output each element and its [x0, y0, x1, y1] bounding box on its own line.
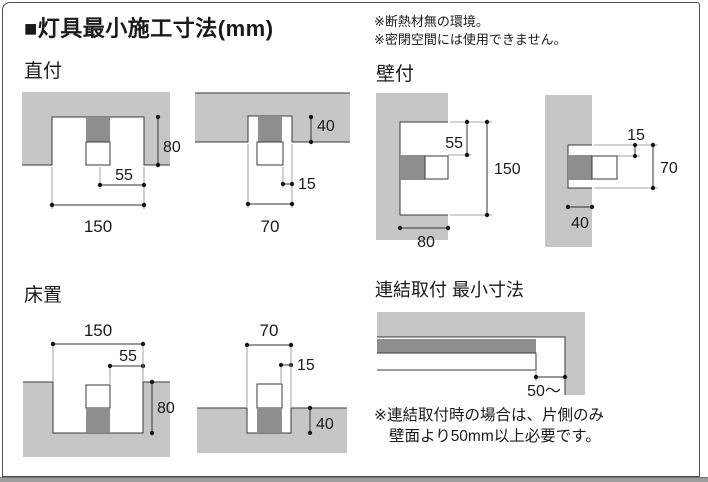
dimension-dot	[446, 226, 450, 230]
dim-label-offset: 55	[115, 167, 133, 184]
fixture-lamp	[377, 353, 536, 370]
dimension-dot	[308, 431, 312, 435]
dim-label-depth: 40	[571, 215, 589, 232]
diagram-renketsu: 50〜	[374, 308, 624, 400]
spec-sheet-page: ■灯具最小施工寸法(mm) ※断熱材無の環境。 ※密閉空間には使用できません。 …	[0, 0, 708, 482]
page-title: ■灯具最小施工寸法(mm)	[24, 11, 274, 43]
dimension-dot	[246, 202, 250, 206]
dimension-dot	[309, 140, 313, 144]
dimension-dot	[290, 202, 294, 206]
dimension-dot	[245, 343, 249, 347]
renketsu-note-line2: 壁面より50mm以上必要です。	[374, 426, 604, 447]
fixture-body	[377, 339, 536, 353]
dim-label-width: 150	[84, 217, 112, 236]
dim-label-offset: 55	[119, 348, 137, 365]
page-bottom-strip	[0, 477, 708, 482]
fixture-body	[257, 408, 282, 433]
section-label-chokuzuke: 直付	[24, 56, 62, 83]
dimension-dot	[465, 120, 469, 124]
renketsu-note: ※連結取付時の場合は、片側のみ 壁面より50mm以上必要です。	[374, 405, 604, 447]
dimension-dot	[281, 182, 285, 186]
dimension-dot	[465, 153, 469, 157]
dimension-dot	[485, 120, 489, 124]
header-notes: ※断熱材無の環境。 ※密閉空間には使用できません。	[374, 13, 567, 49]
fixture-body	[258, 116, 282, 142]
dimension-dot	[289, 343, 293, 347]
dimension-dot	[566, 205, 570, 209]
fixture-lamp	[425, 156, 448, 179]
fixture-body	[86, 117, 110, 142]
dimension-dot	[398, 226, 402, 230]
dimension-dot	[51, 342, 55, 346]
dim-label-height: 150	[494, 161, 521, 178]
diagram-yukaoki-right: 70 15 40	[193, 310, 350, 460]
diagram-kabezuke-right: 15 70 40	[543, 90, 690, 255]
dimension-dot	[50, 203, 54, 207]
dim-label-clearance: 50〜	[527, 383, 561, 400]
dimension-dot	[485, 213, 489, 217]
dim-label-width: 70	[261, 217, 280, 236]
dimension-dot	[150, 431, 154, 435]
dimension-dot	[279, 363, 283, 367]
fixture-lamp	[86, 142, 110, 165]
dimension-dot	[141, 342, 145, 346]
dim-label-depth: 40	[317, 118, 335, 135]
fixture-lamp	[592, 156, 617, 179]
dim-label-depth: 40	[316, 416, 334, 433]
dimension-dot	[309, 115, 313, 119]
dimension-dot	[563, 375, 567, 379]
fixture-lamp	[257, 384, 282, 408]
dimension-dot	[590, 205, 594, 209]
fixture-lamp	[257, 142, 283, 165]
dimension-dot	[651, 143, 655, 147]
diagram-yukaoki-left: 150 55 80	[20, 310, 185, 460]
dimension-dot	[156, 163, 160, 167]
dimension-dot	[142, 183, 146, 187]
section-label-kabezuke: 壁付	[376, 59, 414, 86]
dim-label-offset: 55	[445, 135, 463, 152]
dim-label-depth: 80	[157, 400, 175, 417]
dimension-dot	[98, 183, 102, 187]
fixture-lamp	[86, 385, 110, 408]
dimension-dot	[108, 364, 112, 368]
dim-label-offset: 15	[297, 357, 315, 374]
insulation-note: ※断熱材無の環境。	[374, 13, 567, 31]
dimension-dot	[150, 380, 154, 384]
dim-label-depth: 80	[163, 139, 181, 156]
fixture-body	[400, 155, 425, 180]
dim-label-offset: 15	[298, 176, 316, 193]
dimension-dot	[308, 406, 312, 410]
dim-label-width: 80	[417, 234, 435, 251]
dimension-dot	[651, 186, 655, 190]
diagram-kabezuke-left: 55 150 80	[374, 90, 535, 255]
diagram-chokuzuke-right: 40 15 70	[193, 88, 350, 240]
dimension-dot	[142, 203, 146, 207]
dim-label-width: 70	[260, 321, 279, 340]
renketsu-note-line1: ※連結取付時の場合は、片側のみ	[374, 405, 604, 426]
dimension-dot	[633, 154, 637, 158]
dimension-dot	[534, 375, 538, 379]
fixture-body	[568, 155, 592, 180]
dimension-dot	[290, 182, 294, 186]
dim-label-width: 150	[84, 321, 112, 340]
diagram-chokuzuke-left: 80 55 150	[20, 88, 185, 240]
section-label-renketsu: 連結取付 最小寸法	[375, 276, 524, 302]
section-label-yukaoki: 床置	[24, 280, 62, 307]
sealed-space-note: ※密閉空間には使用できません。	[374, 31, 567, 49]
dim-label-height: 70	[660, 160, 678, 177]
dimension-dot	[156, 115, 160, 119]
dim-label-offset: 15	[627, 127, 645, 144]
fixture-body	[86, 408, 110, 433]
